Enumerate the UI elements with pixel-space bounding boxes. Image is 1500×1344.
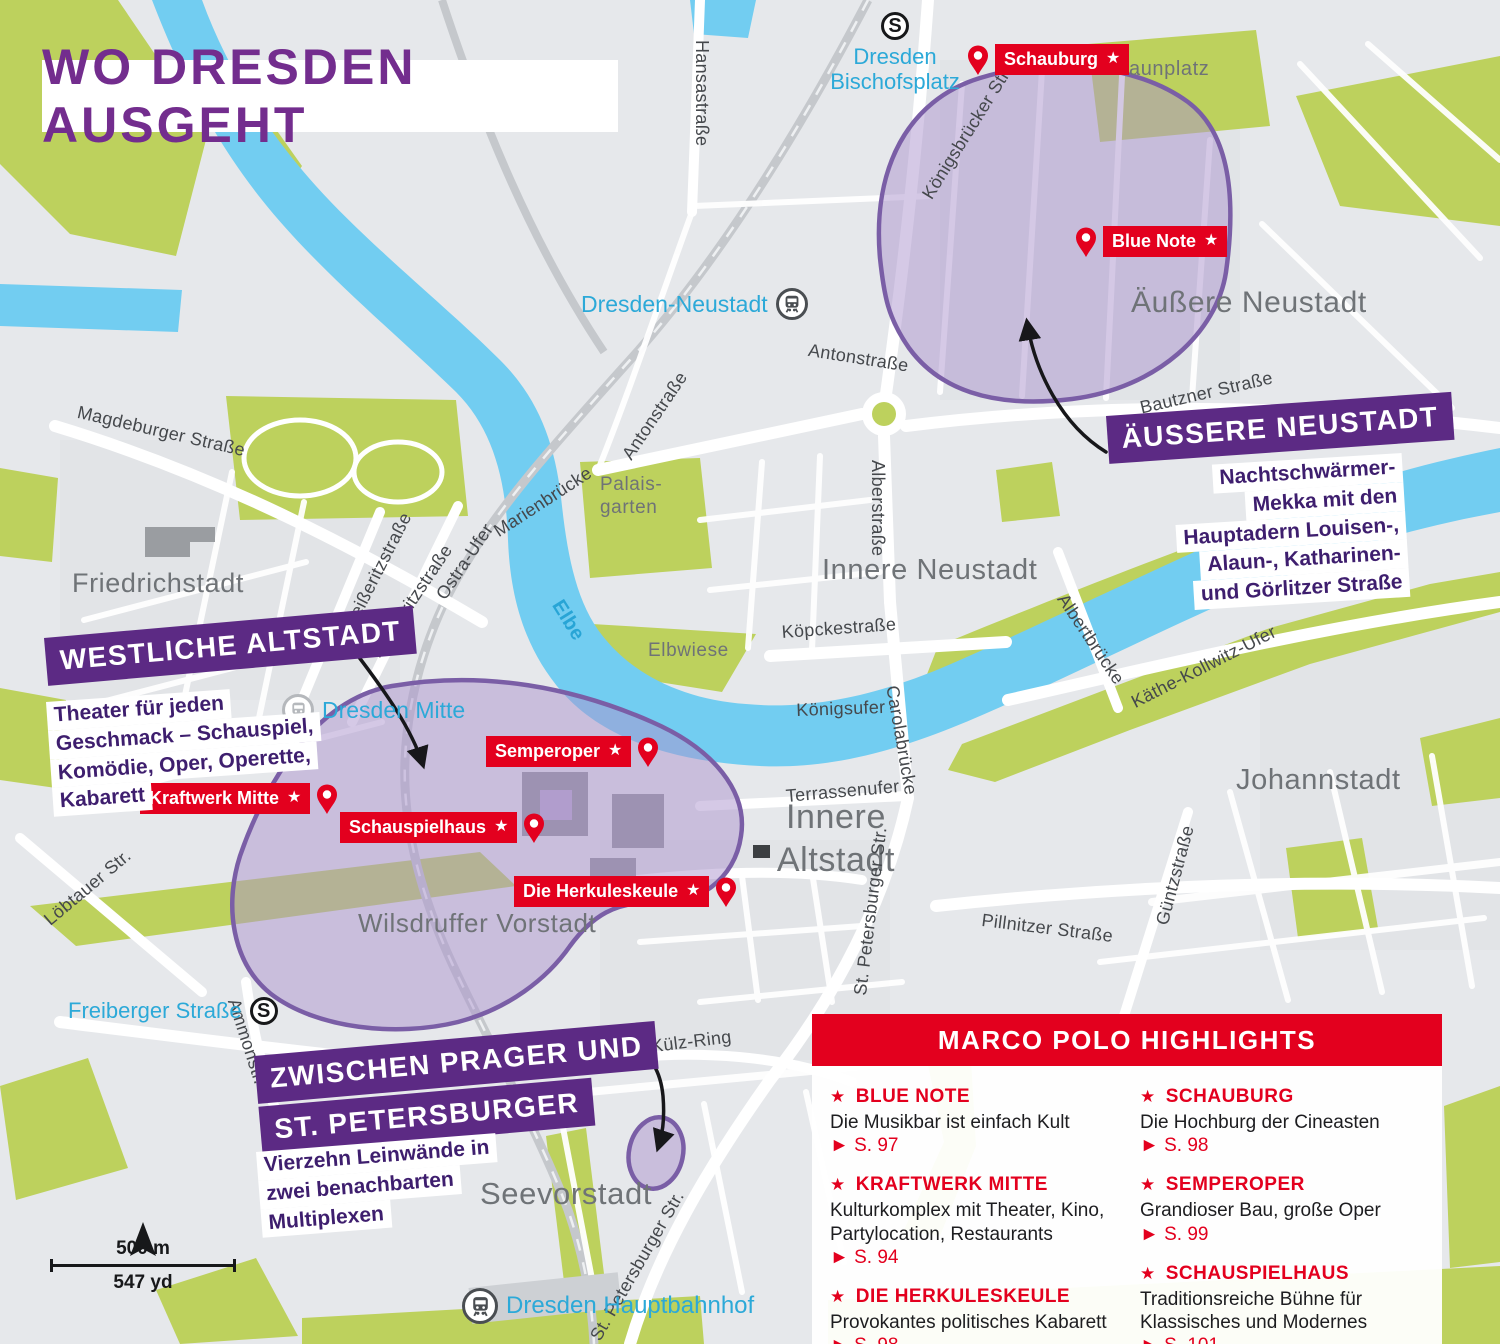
page-arrow-icon: ► (830, 1335, 849, 1344)
highlight-page: S. 98 (1164, 1135, 1208, 1156)
station-label: Dresden-Neustadt (581, 291, 768, 318)
star-icon: ★ (830, 1087, 846, 1107)
highlight-item: ★SEMPEROPER Grandioser Bau, große Oper ►… (1140, 1174, 1424, 1245)
district-seevorstadt: Seevorstadt (480, 1176, 652, 1212)
highlights-header: MARCO POLO HIGHLIGHTS (812, 1014, 1442, 1066)
page-arrow-icon: ► (1140, 1135, 1159, 1156)
street-koenigsufer: Königsufer (796, 697, 886, 721)
poi-name: Semperoper (495, 742, 600, 760)
district-innere-altstadt: Innere Altstadt (756, 796, 916, 881)
star-icon: ★ (1140, 1087, 1156, 1107)
map-title: WO DRESDEN AUSGEHT (42, 38, 618, 154)
map-pin-icon (966, 44, 990, 76)
district-aeussere-neustadt: Äußere Neustadt (1131, 286, 1367, 320)
highlight-item: ★SCHAUSPIELHAUS Traditionsreiche Bühne f… (1140, 1263, 1424, 1344)
poi-name: Schauspielhaus (349, 818, 486, 836)
desc-aeussere-neustadt: Nachtschwärmer- Mekka mit den Hauptadern… (1157, 453, 1410, 612)
highlights-title: MARCO POLO HIGHLIGHTS (938, 1025, 1316, 1056)
highlight-page: S. 99 (1164, 1224, 1208, 1245)
district-palaisgarten: Palais-garten (600, 474, 674, 520)
sbahn-icon: S (881, 12, 909, 40)
station-bischofsplatz: S Dresden Bischofsplatz (830, 12, 960, 95)
station-label: Freiberger Straße (68, 998, 242, 1024)
highlight-desc: Kulturkomplex mit Theater, Kino, Partylo… (830, 1200, 1104, 1244)
page-arrow-icon: ► (830, 1247, 849, 1268)
highlight-item: ★BLUE NOTE Die Musikbar ist einfach Kult… (830, 1086, 1114, 1157)
desc-westliche-altstadt: Theater für jeden Geschmack – Schauspiel… (46, 683, 325, 817)
castle-building-icon (753, 845, 770, 858)
sbahn-letter: S (888, 15, 901, 38)
star-icon: ★ (1204, 233, 1218, 249)
map-pin-icon (714, 876, 738, 908)
highlight-page: S. 94 (854, 1247, 898, 1268)
district-friedrichstadt: Friedrichstadt (72, 568, 244, 599)
district-elbwiese: Elbwiese (648, 640, 729, 662)
highlight-desc: Provokantes politisches Kabarett (830, 1312, 1107, 1333)
highlight-name: SEMPEROPER (1166, 1174, 1305, 1196)
scale-metric: 500 m (60, 1238, 226, 1260)
highlight-desc: Die Musikbar ist einfach Kult (830, 1112, 1070, 1133)
star-icon: ★ (830, 1287, 846, 1307)
map-pin-icon (1074, 226, 1098, 258)
street-hansastrasse: Hansastraße (691, 40, 712, 146)
highlight-page: S. 98 (854, 1335, 898, 1344)
highlights-box: MARCO POLO HIGHLIGHTS ★BLUE NOTE Die Mus… (812, 1014, 1442, 1344)
poi-name: Die Herkuleskeule (523, 882, 678, 900)
station-hauptbahnhof: Dresden Hauptbahnhof (462, 1288, 754, 1324)
highlight-desc: Grandioser Bau, große Oper (1140, 1200, 1381, 1221)
poi-semperoper: Semperoper★ (486, 736, 660, 768)
map-pin-icon (636, 736, 660, 768)
district-wilsdruffer-vorstadt: Wilsdruffer Vorstadt (358, 908, 596, 939)
highlight-desc: Die Hochburg der Cineasten (1140, 1112, 1380, 1133)
star-icon: ★ (494, 819, 508, 835)
poi-schauburg: Schauburg★ (966, 44, 1129, 76)
highlight-item: ★DIE HERKULESKEULE Provokantes politisch… (830, 1286, 1114, 1344)
poi-name: Blue Note (1112, 232, 1196, 250)
page-arrow-icon: ► (1140, 1224, 1159, 1245)
highlight-item: ★KRAFTWERK MITTE Kulturkomplex mit Theat… (830, 1174, 1114, 1269)
highlight-page: S. 101 (1164, 1335, 1219, 1344)
star-icon: ★ (1140, 1175, 1156, 1195)
scale-imperial: 547 yd (60, 1272, 226, 1294)
star-icon: ★ (1140, 1264, 1156, 1284)
highlights-body: ★BLUE NOTE Die Musikbar ist einfach Kult… (812, 1066, 1442, 1344)
highlight-name: SCHAUBURG (1166, 1086, 1294, 1108)
train-icon (776, 288, 808, 320)
station-label: Dresden Hauptbahnhof (506, 1292, 754, 1320)
scale-bar (50, 1264, 236, 1267)
poi-schauspielhaus: Schauspielhaus★ (340, 812, 546, 844)
sbahn-letter: S (257, 1000, 270, 1023)
sbahn-icon: S (250, 997, 278, 1025)
map-canvas: WO DRESDEN AUSGEHT Äußere Neustadt Inner… (0, 0, 1500, 1344)
highlight-name: SCHAUSPIELHAUS (1166, 1263, 1349, 1285)
highlights-column-left: ★BLUE NOTE Die Musikbar ist einfach Kult… (830, 1086, 1114, 1344)
page-arrow-icon: ► (830, 1135, 849, 1156)
star-icon: ★ (608, 743, 622, 759)
map-title-box: WO DRESDEN AUSGEHT (42, 60, 618, 132)
highlight-desc: Traditionsreiche Bühne für Klassisches u… (1140, 1289, 1367, 1333)
highlight-item: ★SCHAUBURG Die Hochburg der Cineasten ► … (1140, 1086, 1424, 1157)
train-icon (462, 1288, 498, 1324)
station-neustadt: Dresden-Neustadt (581, 288, 808, 320)
star-icon: ★ (1106, 51, 1120, 67)
district-innere-neustadt: Innere Neustadt (822, 554, 1037, 587)
station-label: Dresden Bischofsplatz (830, 44, 960, 95)
station-freiberger: Freiberger Straße S (68, 997, 278, 1025)
star-icon: ★ (686, 883, 700, 899)
albertplatz-roundabout (862, 392, 906, 436)
highlight-name: DIE HERKULESKEULE (856, 1286, 1070, 1308)
star-icon: ★ (830, 1175, 846, 1195)
highlights-column-right: ★SCHAUBURG Die Hochburg der Cineasten ► … (1140, 1086, 1424, 1344)
highlight-page: S. 97 (854, 1135, 898, 1156)
station-label: Dresden Mitte (322, 697, 465, 724)
poi-name: Schauburg (1004, 50, 1098, 68)
district-johannstadt: Johannstadt (1236, 764, 1401, 797)
poi-herkuleskeule: Die Herkuleskeule★ (514, 876, 738, 908)
highlight-name: BLUE NOTE (856, 1086, 970, 1108)
highlight-name: KRAFTWERK MITTE (856, 1174, 1048, 1196)
page-arrow-icon: ► (1140, 1335, 1159, 1344)
street-alberstrasse: Alberstraße (867, 460, 888, 556)
poi-blue-note: Blue Note★ (1074, 226, 1227, 258)
map-pin-icon (522, 812, 546, 844)
